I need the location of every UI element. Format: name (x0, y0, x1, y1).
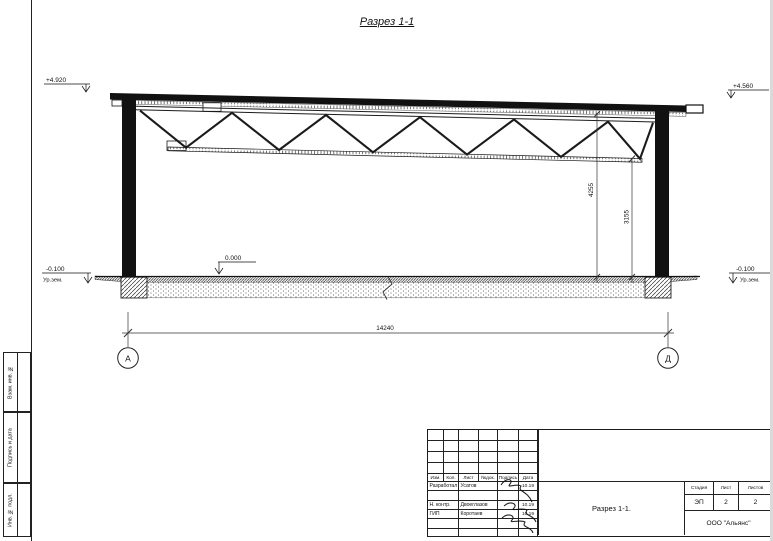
tb-role (428, 491, 459, 501)
side-cell-vzam: Взам. инв. № (3, 352, 31, 412)
divider (17, 353, 18, 411)
tb-empty-cell (519, 441, 538, 452)
tb-name (459, 491, 498, 501)
tb-empty-cell (428, 463, 444, 474)
axis-right-label: Д (665, 353, 671, 363)
axis-left-label: А (125, 353, 131, 363)
footing-right (645, 277, 671, 298)
tb-empty-cell (519, 430, 538, 441)
tb-doc-title: Разрез 1-1. (538, 482, 684, 535)
roof-left-bracket (112, 100, 122, 106)
floor-ground (95, 276, 700, 300)
side-label-podpis: Подпись и дата (4, 413, 17, 482)
truss-top-gusset (203, 103, 221, 112)
tb-empty-cell (459, 452, 479, 463)
drawing-sheet: Разрез 1-1 (0, 0, 773, 541)
tb-role: Н. контр. (428, 501, 459, 510)
slab-hatch (147, 277, 645, 282)
tb-empty-cell (498, 430, 519, 441)
tb-role: Разработал (428, 482, 459, 491)
tb-empty-cell (479, 430, 498, 441)
tb-empty-cell (444, 441, 459, 452)
side-label-vzam: Взам. инв. № (4, 353, 17, 411)
divider (17, 413, 18, 482)
level-floor: 0.000 (215, 255, 256, 274)
tb-empty-cell (498, 441, 519, 452)
tb-sheets-value: 2 (739, 495, 773, 511)
tb-empty-cell (444, 463, 459, 474)
level-roof-left-value: +4.920 (46, 77, 66, 84)
level-roof-left: +4.920 (44, 77, 90, 92)
tb-doc-number-cell (538, 430, 772, 482)
tb-empty-cell (459, 463, 479, 474)
level-ground-left-value: -0.100 (46, 266, 65, 273)
tb-empty-cell (428, 452, 444, 463)
dim-h-total: 4255 (588, 183, 595, 198)
level-ground-right-label: Ур.зем. (740, 278, 760, 284)
tb-empty-cell (479, 441, 498, 452)
tb-header-ndok: №док. (479, 474, 498, 482)
tb-empty-cell (459, 441, 479, 452)
tb-empty-cell (519, 452, 538, 463)
side-stamp: Взам. инв. № Подпись и дата Инв. № подл. (3, 352, 31, 537)
tb-empty-cell (498, 463, 519, 474)
tb-header-kol: Кол. (444, 474, 459, 482)
tb-empty-cell (498, 452, 519, 463)
tb-empty-cell (428, 441, 444, 452)
divider (17, 484, 18, 536)
signature-3 (502, 515, 533, 533)
tb-sheet-value: 2 (714, 495, 739, 511)
signature-2 (504, 503, 536, 522)
subfloor-fill (147, 282, 645, 298)
tb-company: ООО "Альянс" (684, 511, 772, 535)
tb-stage-grid: Стадия Лист Листов ЭП 2 2 (684, 482, 772, 511)
level-ground-left-label: Ур.зем. (43, 278, 63, 284)
column-right (655, 111, 669, 277)
dim-span-value: 14240 (376, 325, 394, 332)
tb-empty-cell (519, 463, 538, 474)
dim-h-clear: 3155 (624, 210, 631, 225)
tb-empty-cell (479, 452, 498, 463)
tb-stage-label: Стадия (685, 482, 714, 495)
level-floor-value: 0.000 (225, 255, 242, 262)
tb-name: Коротаев (459, 510, 498, 519)
tb-empty-cell (428, 430, 444, 441)
tb-sheets-label: Листов (739, 482, 773, 495)
roof-end-channel (686, 105, 703, 113)
level-ground-right: -0.100 Ур.зем. (729, 266, 771, 284)
side-cell-podpis: Подпись и дата (3, 412, 31, 483)
side-cell-inv: Инв. № подл. (3, 483, 31, 537)
column-left (122, 94, 136, 277)
tb-empty-cell (444, 430, 459, 441)
title-block: Изм. Кол. Лист №док. Подпись Дата Разраб… (427, 429, 771, 537)
level-roof-right-value: +4.560 (733, 83, 753, 90)
level-roof-right: +4.560 (727, 83, 769, 98)
footing-left (121, 277, 147, 298)
tb-role (428, 529, 459, 537)
frame-border-left (31, 0, 32, 541)
tb-stage-value: ЭП (685, 495, 714, 511)
level-ground-right-value: -0.100 (736, 266, 755, 273)
tb-header-list: Лист (459, 474, 479, 482)
tb-name: Двоеглазов (459, 501, 498, 510)
signature-1 (501, 480, 532, 502)
tb-name (459, 519, 498, 529)
tb-empty-cell (459, 430, 479, 441)
tb-name: Усатов (459, 482, 498, 491)
side-label-inv: Инв. № подл. (4, 484, 17, 536)
dim-span: 14240 А Д (118, 312, 679, 368)
tb-name (459, 529, 498, 537)
tb-header-izm: Изм. (428, 474, 444, 482)
level-ground-left: -0.100 Ур.зем. (42, 266, 92, 284)
tb-empty-cell (479, 463, 498, 474)
tb-sheet-label: Лист (714, 482, 739, 495)
tb-role (428, 519, 459, 529)
dim-heights: 4255 3155 (588, 111, 635, 283)
tb-role: ГИП (428, 510, 459, 519)
tb-empty-cell (444, 452, 459, 463)
